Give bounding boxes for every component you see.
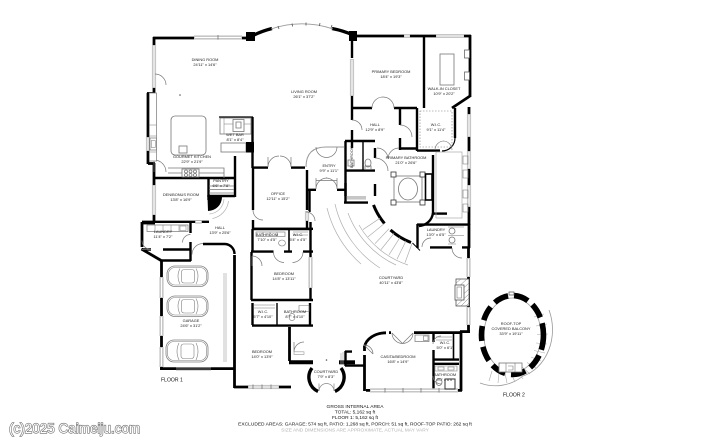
svg-text:9'9" x 11'1": 9'9" x 11'1" [320,168,340,173]
svg-text:TOTAL: 5,162 sq ft: TOTAL: 5,162 sq ft [335,410,376,416]
svg-text:5'4" x 4'5": 5'4" x 4'5" [289,237,307,242]
svg-text:EXCLUDED AREAS: GARAGE: 574 sq: EXCLUDED AREAS: GARAGE: 574 sq ft, PATIO… [238,422,472,428]
svg-text:13'8" x 16'9": 13'8" x 16'9" [170,197,192,202]
svg-text:7'10" x 4'5": 7'10" x 4'5" [257,237,277,242]
svg-text:5'0" x 6'1": 5'0" x 6'1" [436,345,454,350]
svg-text:12'11" x 15'2": 12'11" x 15'2" [266,196,290,201]
svg-text:40'11" x 43'8": 40'11" x 43'8" [379,280,403,285]
svg-text:24'6" x 31'2": 24'6" x 31'2" [180,323,202,328]
svg-text:13'0" x 6'5": 13'0" x 6'5" [426,232,446,237]
svg-text:21'0" x 26'6": 21'0" x 26'6" [395,160,417,165]
svg-text:22'9" x 21'9": 22'9" x 21'9" [181,159,203,164]
svg-text:14'0" x 13'9": 14'0" x 13'9" [251,354,273,359]
svg-text:13'9" x 25'6": 13'9" x 25'6" [209,230,231,235]
svg-text:(c)2025 Caimeiju.com: (c)2025 Caimeiju.com [9,421,140,436]
svg-text:11'4" x 7'2": 11'4" x 7'2" [154,234,174,239]
svg-text:SIZE AND DIMENSIONS ARE APPROX: SIZE AND DIMENSIONS ARE APPROXIMATE, ACT… [281,428,429,434]
svg-text:6'6" x 7'8": 6'6" x 7'8" [212,183,230,188]
svg-text:33'9" x 19'11": 33'9" x 19'11" [499,331,523,336]
svg-text:14'8" x 13'11": 14'8" x 13'11" [272,276,296,281]
svg-text:12'9" x 8'9": 12'9" x 8'9" [365,127,385,132]
svg-text:18'4" x 19'3": 18'4" x 19'3" [380,74,402,79]
svg-text:FLOOR 1: 5,162 sq ft: FLOOR 1: 5,162 sq ft [332,415,379,421]
svg-text:FLOOR 2: FLOOR 2 [503,393,525,399]
svg-text:FLOOR 1: FLOOR 1 [161,378,183,384]
svg-text:24'11" x 14'6": 24'11" x 14'6" [193,62,217,67]
svg-text:GROSS INTERNAL AREA: GROSS INTERNAL AREA [327,404,385,410]
svg-text:7'9" x 8'3": 7'9" x 8'3" [317,374,335,379]
svg-text:9'0" x 6'0": 9'0" x 6'0" [436,377,454,382]
svg-text:5'7" x 4'10": 5'7" x 4'10" [253,314,273,319]
svg-text:10'9" x 20'2": 10'9" x 20'2" [433,91,455,96]
svg-text:16'8" x 14'9": 16'8" x 14'9" [387,359,409,364]
svg-text:9'1" x 11'4": 9'1" x 11'4" [427,127,447,132]
svg-text:26'1" x 37'2": 26'1" x 37'2" [293,94,315,99]
svg-text:BATHROOM: BATHROOM [349,146,354,168]
svg-text:8'1" x 8'4": 8'1" x 8'4" [226,137,244,142]
svg-text:8'7" x 4'10": 8'7" x 4'10" [285,314,305,319]
